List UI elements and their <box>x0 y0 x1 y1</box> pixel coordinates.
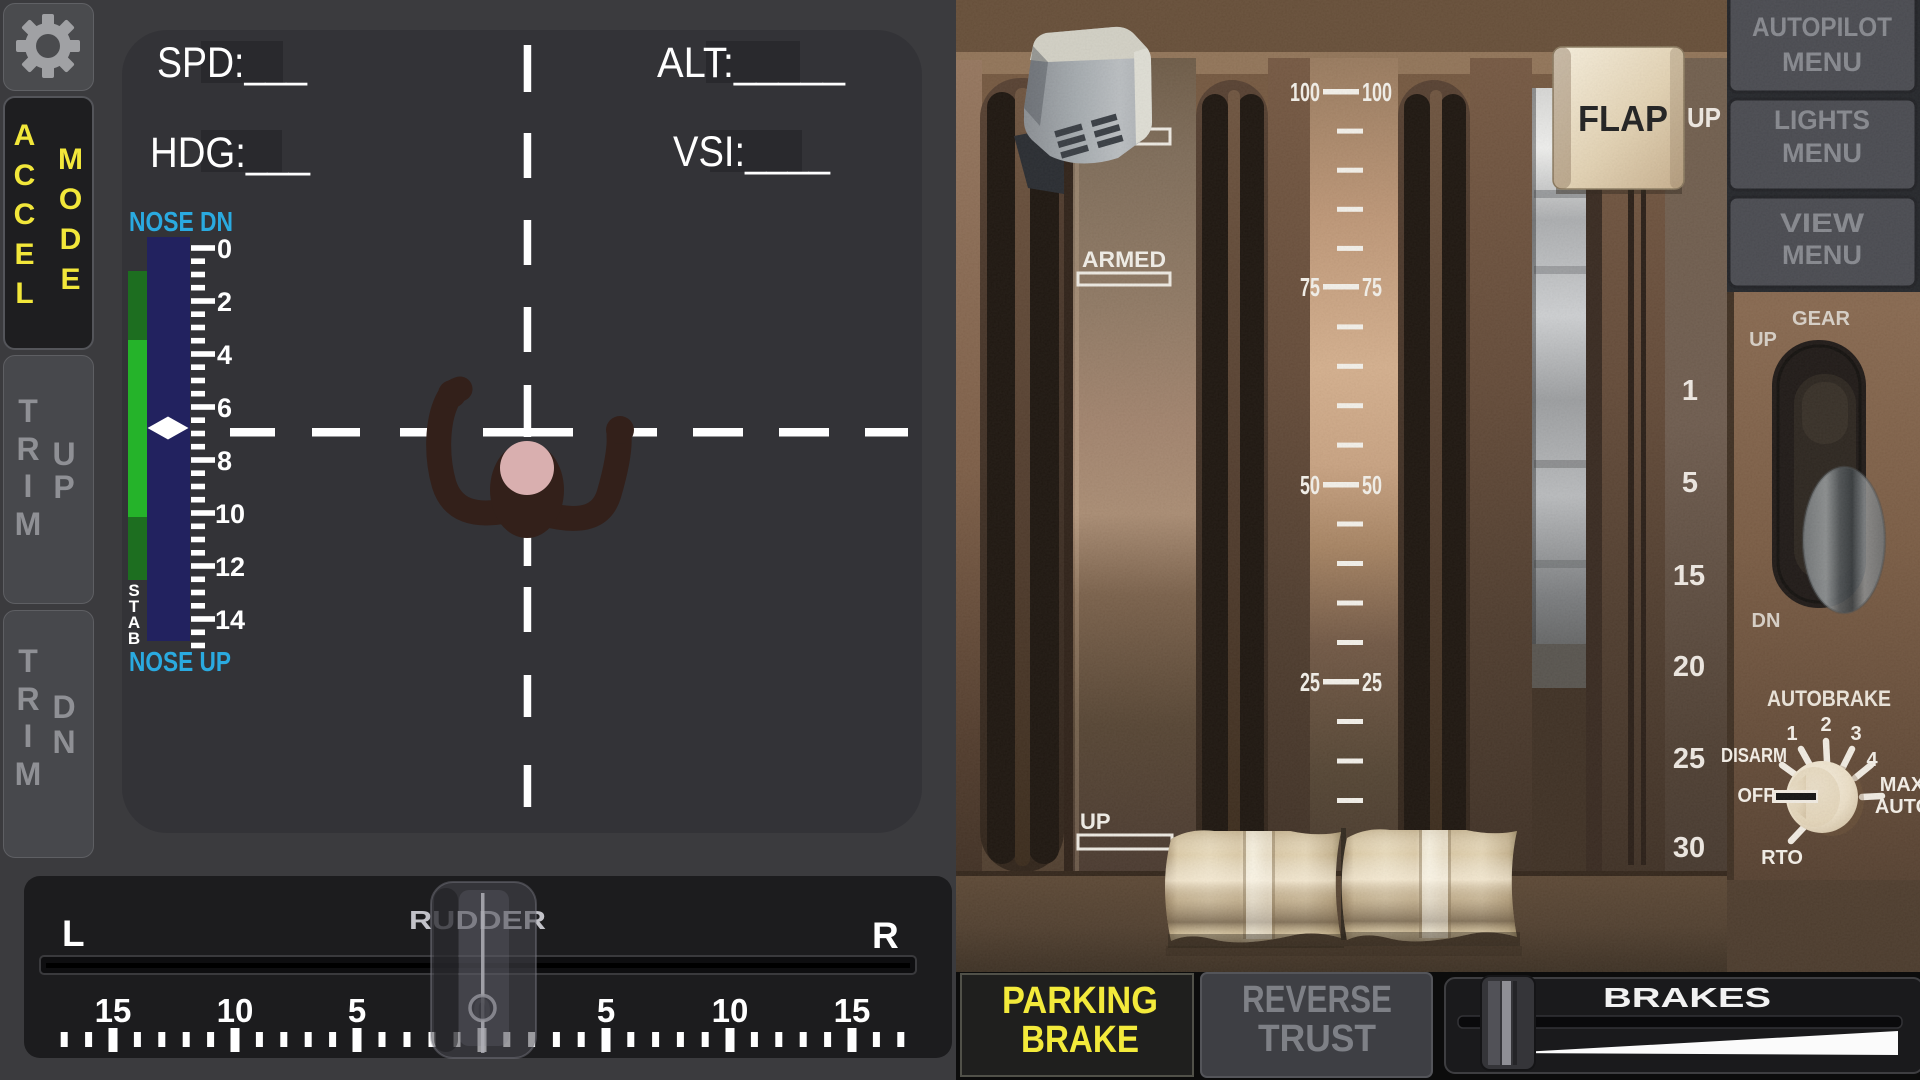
svg-text:SPD:___: SPD:___ <box>157 39 308 87</box>
svg-text:2: 2 <box>217 287 232 317</box>
svg-text:NOSE DN: NOSE DN <box>129 206 233 237</box>
svg-text:ALT:_____: ALT:_____ <box>657 39 846 87</box>
svg-text:HDG:___: HDG:___ <box>150 129 311 177</box>
svg-text:5: 5 <box>348 992 366 1029</box>
svg-text:REVERSE: REVERSE <box>1242 979 1392 1021</box>
svg-text:B: B <box>128 629 140 648</box>
svg-text:5: 5 <box>597 992 615 1029</box>
svg-text:BRAKES: BRAKES <box>1603 982 1771 1013</box>
svg-text:8: 8 <box>217 446 232 476</box>
svg-text:TRUST: TRUST <box>1258 1018 1376 1060</box>
svg-text:14: 14 <box>215 605 245 635</box>
svg-text:12: 12 <box>215 552 245 582</box>
svg-text:VSI:____: VSI:____ <box>673 128 831 176</box>
svg-text:10: 10 <box>712 992 749 1029</box>
svg-text:10: 10 <box>217 992 254 1029</box>
svg-text:PARKING: PARKING <box>1002 980 1158 1022</box>
svg-text:L: L <box>62 913 85 954</box>
svg-text:15: 15 <box>834 992 871 1029</box>
svg-text:0: 0 <box>217 234 232 264</box>
svg-text:BRAKE: BRAKE <box>1021 1019 1139 1061</box>
svg-text:4: 4 <box>217 340 232 370</box>
svg-text:15: 15 <box>95 992 132 1029</box>
svg-text:6: 6 <box>217 393 232 423</box>
svg-text:10: 10 <box>215 499 245 529</box>
svg-text:NOSE UP: NOSE UP <box>129 646 231 677</box>
svg-text:R: R <box>872 915 899 956</box>
